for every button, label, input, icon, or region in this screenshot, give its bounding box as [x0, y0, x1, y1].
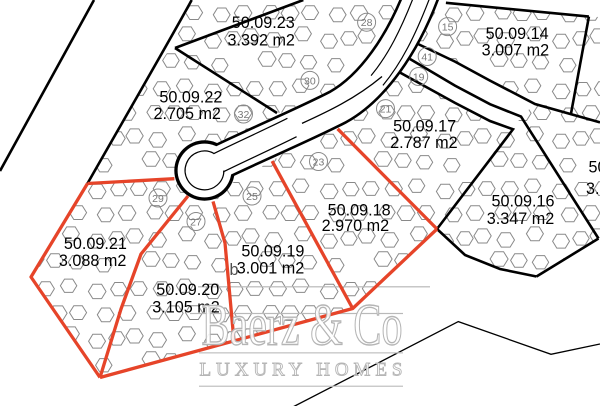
svg-text:3.392 m2: 3.392 m2 — [227, 31, 295, 49]
svg-text:25: 25 — [246, 191, 258, 203]
svg-text:50.09.23: 50.09.23 — [232, 14, 295, 32]
svg-text:50.09.17: 50.09.17 — [393, 118, 456, 136]
svg-text:50.09.22: 50.09.22 — [159, 89, 222, 107]
svg-text:2.970 m2: 2.970 m2 — [322, 217, 390, 235]
svg-text:15: 15 — [442, 22, 454, 34]
svg-text:2.705 m2: 2.705 m2 — [153, 105, 221, 123]
svg-text:28: 28 — [361, 17, 373, 29]
svg-text:Baerz & Co: Baerz & Co — [202, 292, 403, 358]
svg-text:50.09.16: 50.09.16 — [491, 193, 554, 211]
svg-text:3.001 m2: 3.001 m2 — [237, 260, 305, 278]
svg-text:30: 30 — [304, 75, 316, 87]
svg-text:3.507 m2: 3.507 m2 — [586, 180, 600, 198]
svg-text:19: 19 — [413, 72, 425, 84]
svg-text:27: 27 — [190, 217, 202, 229]
svg-text:50.09.14: 50.09.14 — [486, 25, 549, 43]
svg-text:29: 29 — [152, 193, 164, 205]
svg-text:2.787 m2: 2.787 m2 — [390, 134, 458, 152]
svg-text:50.09.21: 50.09.21 — [64, 235, 127, 253]
svg-text:3.088 m2: 3.088 m2 — [59, 252, 127, 270]
svg-text:32: 32 — [238, 109, 250, 121]
svg-text:3.007 m2: 3.007 m2 — [482, 42, 550, 60]
svg-text:50.09.19: 50.09.19 — [241, 242, 304, 260]
svg-text:41: 41 — [421, 52, 433, 64]
svg-text:50.09.15: 50.09.15 — [589, 158, 600, 176]
svg-text:3.347 m2: 3.347 m2 — [487, 210, 555, 228]
svg-text:b: b — [229, 261, 238, 279]
svg-text:21: 21 — [380, 104, 392, 116]
svg-text:23: 23 — [313, 157, 325, 169]
